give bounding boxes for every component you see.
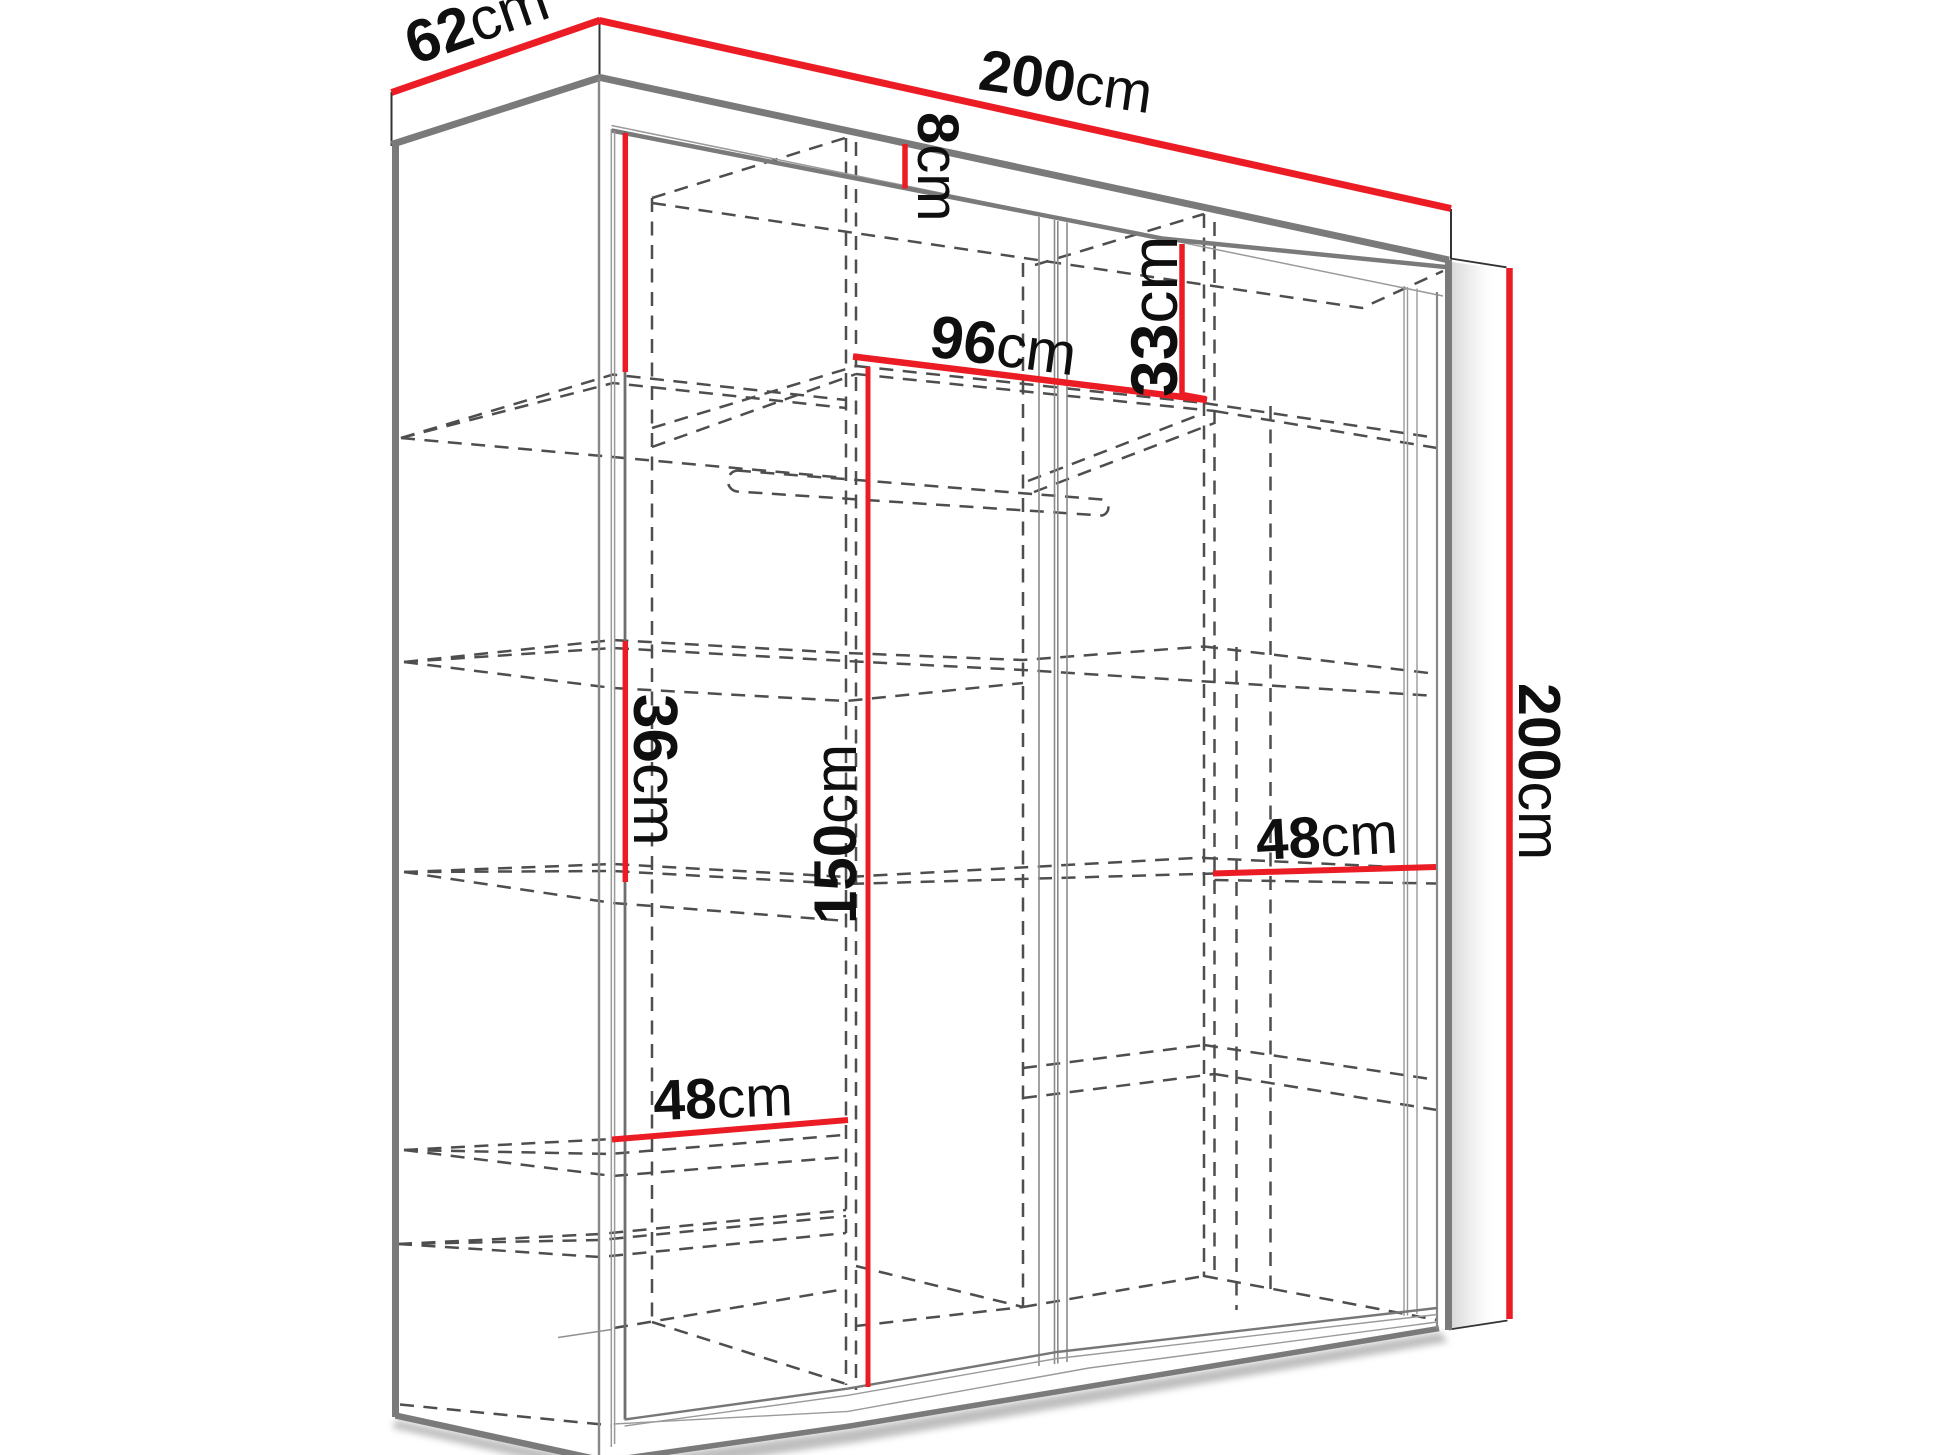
svg-text:36cm: 36cm bbox=[620, 694, 689, 846]
svg-text:8cm: 8cm bbox=[905, 112, 970, 222]
svg-text:48cm: 48cm bbox=[1254, 801, 1399, 873]
svg-text:150cm: 150cm bbox=[802, 744, 869, 924]
svg-text:200cm: 200cm bbox=[1506, 683, 1572, 860]
svg-text:48cm: 48cm bbox=[652, 1064, 794, 1133]
svg-text:33cm: 33cm bbox=[1117, 236, 1191, 397]
